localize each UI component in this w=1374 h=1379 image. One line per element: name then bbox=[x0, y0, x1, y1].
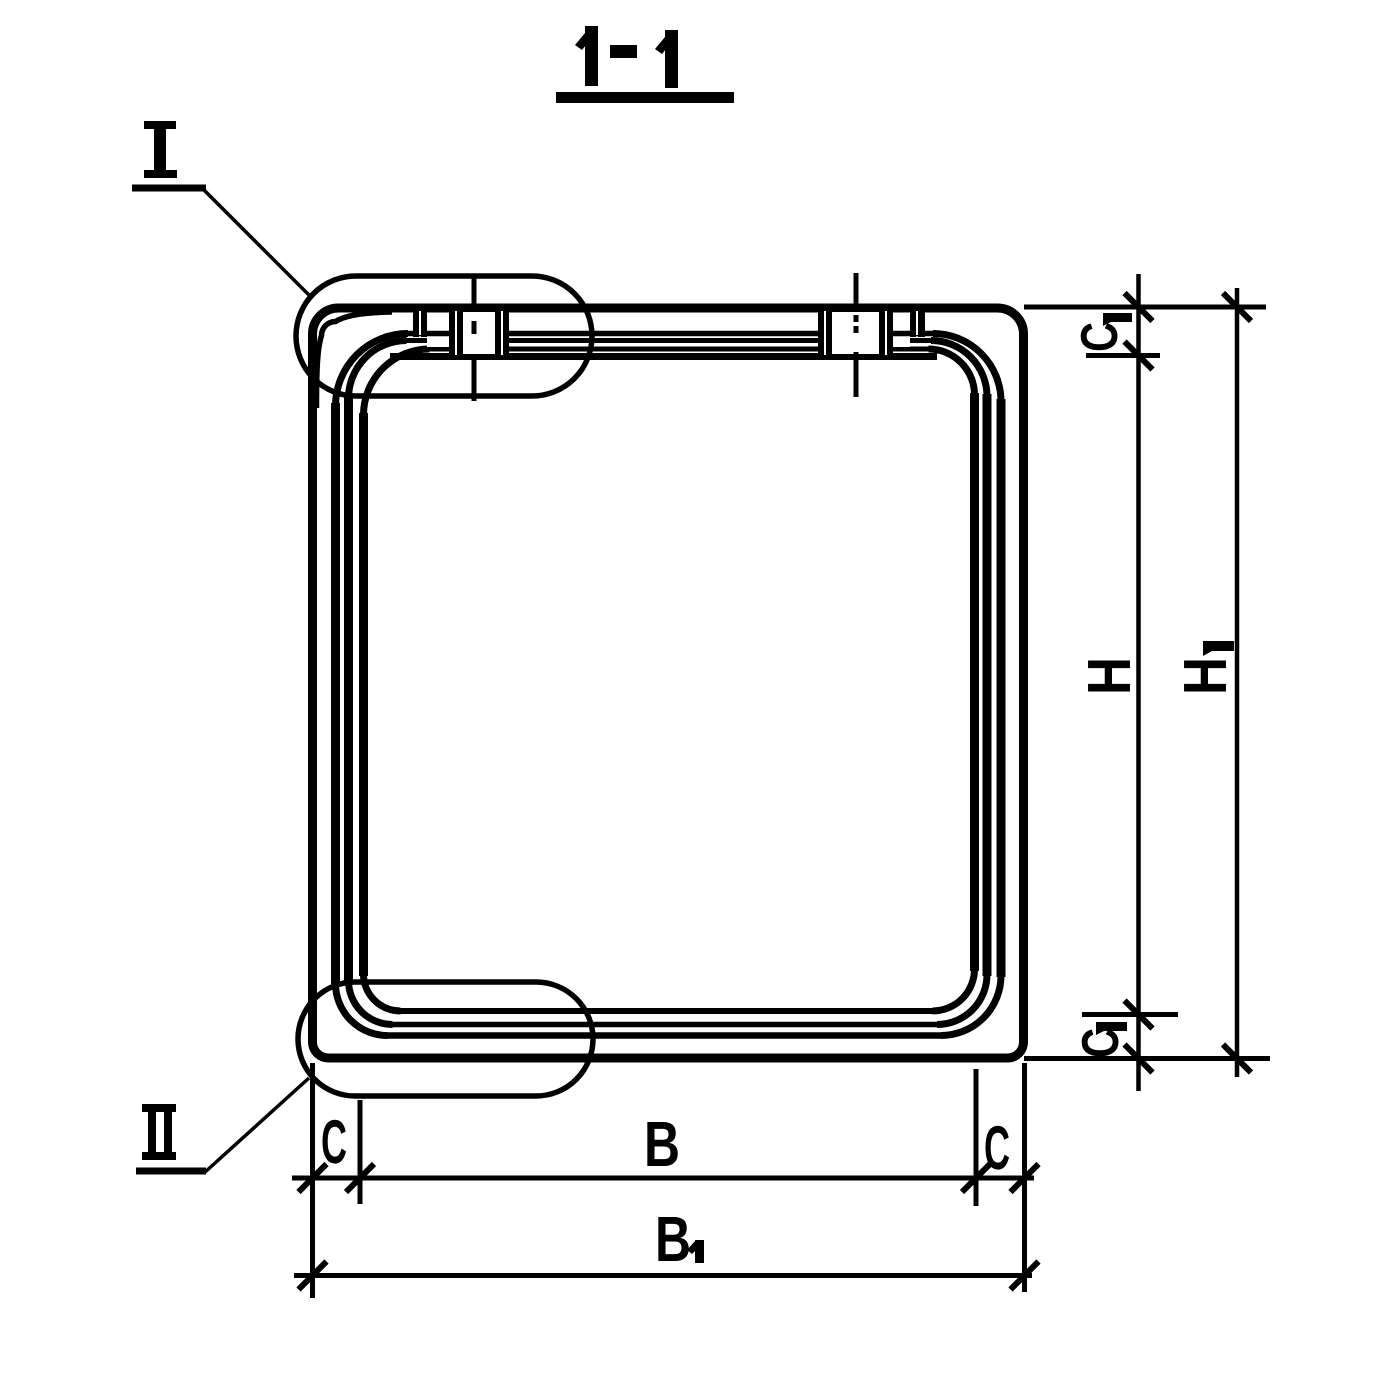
svg-text:H: H bbox=[1171, 657, 1239, 695]
svg-text:C: C bbox=[984, 1114, 1010, 1183]
svg-text:B: B bbox=[644, 1108, 680, 1180]
svg-text:B: B bbox=[655, 1203, 691, 1275]
svg-text:C: C bbox=[1071, 322, 1129, 352]
svg-text:C: C bbox=[321, 1108, 347, 1177]
svg-text:H: H bbox=[1075, 657, 1143, 695]
